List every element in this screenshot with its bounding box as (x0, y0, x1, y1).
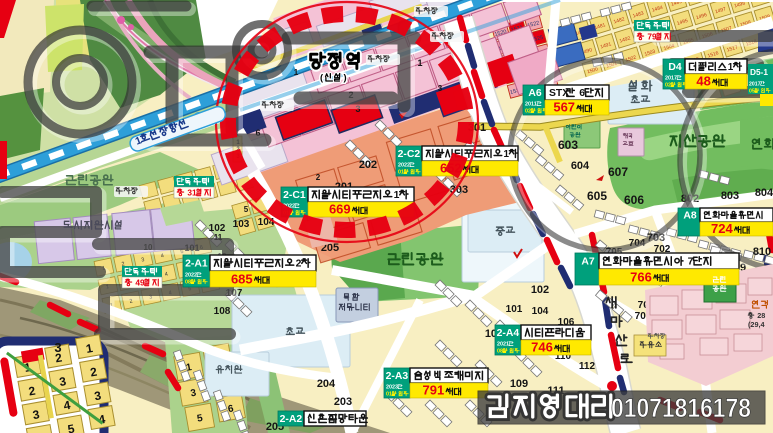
svg-text:2023: 2023 (386, 384, 398, 390)
svg-text:810: 810 (753, 246, 771, 258)
svg-text:804: 804 (755, 187, 773, 199)
svg-text:766: 766 (630, 270, 652, 285)
svg-text:204: 204 (317, 378, 336, 390)
svg-text:05: 05 (749, 88, 755, 94)
svg-text:746: 746 (531, 340, 553, 355)
svg-text:791: 791 (423, 383, 445, 398)
svg-text:02: 02 (665, 82, 671, 88)
svg-text:7: 7 (688, 257, 694, 268)
svg-text:104: 104 (258, 217, 275, 228)
svg-text:102: 102 (531, 284, 549, 296)
svg-text:3: 3 (438, 84, 443, 93)
svg-text:2-A3: 2-A3 (386, 371, 409, 382)
svg-text:2022: 2022 (398, 162, 410, 168)
svg-text:(29,4: (29,4 (748, 320, 765, 329)
svg-text:2017: 2017 (749, 81, 761, 87)
svg-text:2: 2 (316, 173, 321, 182)
svg-text:112: 112 (579, 361, 596, 372)
svg-text:2-A1: 2-A1 (185, 259, 208, 270)
svg-text:STX: STX (549, 88, 569, 99)
svg-text:): ) (343, 73, 346, 83)
svg-text:28: 28 (757, 311, 765, 320)
svg-text:02: 02 (525, 108, 531, 114)
svg-text:108: 108 (214, 306, 231, 317)
svg-text:669: 669 (329, 202, 351, 217)
svg-text:2017: 2017 (665, 75, 677, 81)
svg-text:6: 6 (579, 88, 585, 99)
svg-text:01071816178: 01071816178 (611, 393, 751, 423)
svg-text:49: 49 (135, 277, 145, 287)
svg-text:A8: A8 (683, 211, 697, 222)
svg-text:2021: 2021 (497, 341, 509, 347)
svg-text:2022: 2022 (185, 272, 197, 278)
svg-text:D5-1: D5-1 (750, 67, 768, 77)
svg-text:01: 01 (398, 169, 404, 175)
svg-text:103: 103 (233, 219, 250, 230)
svg-text:A7: A7 (581, 257, 595, 268)
svg-text:567: 567 (553, 100, 575, 115)
svg-text:604: 604 (571, 160, 590, 172)
svg-text:109: 109 (510, 378, 528, 390)
svg-text:31: 31 (187, 187, 197, 197)
svg-text:685: 685 (231, 272, 253, 287)
svg-text:5: 5 (244, 205, 249, 214)
svg-text:08: 08 (497, 348, 503, 354)
svg-text:203: 203 (334, 396, 352, 408)
svg-text:3: 3 (54, 340, 61, 355)
svg-text:605: 605 (587, 189, 607, 203)
svg-text:202: 202 (359, 159, 377, 171)
svg-text:A6: A6 (528, 88, 542, 99)
svg-text:1: 1 (417, 58, 422, 68)
svg-text:803: 803 (721, 190, 739, 202)
svg-text:2-A4: 2-A4 (497, 328, 520, 339)
svg-text:724: 724 (711, 221, 733, 236)
svg-text:606: 606 (624, 193, 644, 207)
svg-text:2-A2: 2-A2 (280, 414, 303, 425)
svg-text:1: 1 (728, 62, 734, 73)
svg-text:101: 101 (506, 304, 523, 315)
svg-text:2-C2: 2-C2 (398, 149, 421, 160)
svg-text:08: 08 (185, 279, 191, 285)
svg-text:2-C1: 2-C1 (283, 190, 306, 201)
svg-text:1: 1 (504, 149, 510, 160)
svg-text:603: 603 (558, 138, 578, 152)
svg-text:2: 2 (296, 259, 302, 270)
svg-text:D4: D4 (668, 62, 682, 73)
svg-text:01: 01 (386, 391, 392, 397)
svg-text:2011: 2011 (525, 101, 537, 107)
svg-text:48: 48 (696, 74, 710, 89)
svg-text:104: 104 (532, 306, 549, 317)
svg-text:1: 1 (294, 68, 299, 77)
svg-text:1: 1 (394, 190, 400, 201)
svg-text:79: 79 (647, 31, 657, 41)
svg-text:607: 607 (608, 165, 628, 179)
